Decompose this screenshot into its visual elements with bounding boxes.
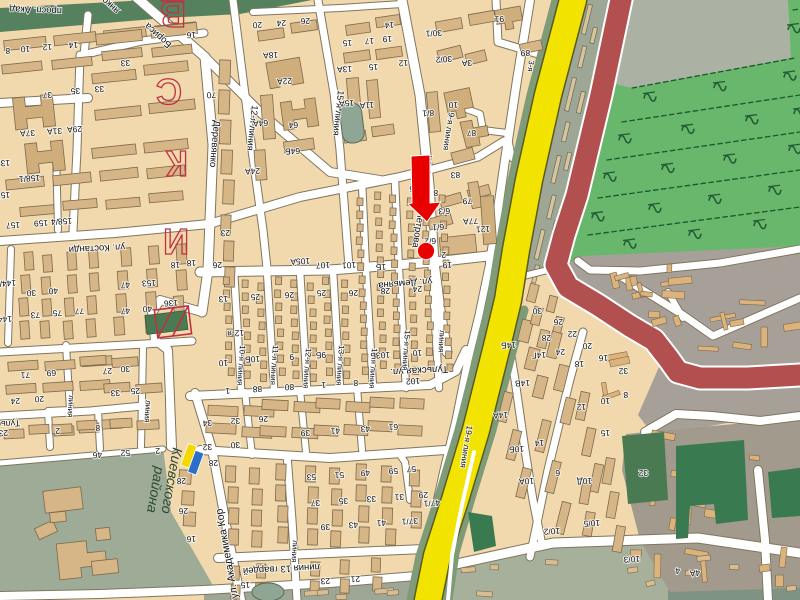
svg-text:40: 40 [142,304,152,314]
svg-text:30/2: 30/2 [435,54,452,65]
svg-text:19: 19 [442,260,452,270]
svg-text:1: 1 [321,380,327,390]
svg-text:22А: 22А [276,76,292,87]
svg-text:24: 24 [276,18,286,28]
svg-text:18А: 18А [262,50,278,61]
svg-text:12: 12 [398,58,408,68]
svg-text:В: В [160,0,186,35]
svg-text:14Б: 14Б [500,340,516,351]
svg-text:59: 59 [388,466,398,476]
svg-text:71: 71 [20,370,30,380]
svg-text:24: 24 [555,347,565,357]
svg-text:6: 6 [555,468,561,478]
svg-text:К: К [165,143,188,184]
svg-text:11А: 11А [359,100,374,111]
svg-text:13А: 13А [336,64,352,75]
svg-text:21: 21 [350,574,360,584]
svg-text:135: 135 [0,158,10,169]
svg-text:14: 14 [534,438,544,448]
svg-text:10: 10 [20,44,30,54]
svg-text:24А: 24А [244,166,260,177]
svg-text:12: 12 [42,42,52,52]
svg-text:20: 20 [582,341,592,351]
svg-text:14: 14 [384,20,394,30]
svg-text:31А: 31А [46,126,62,137]
svg-text:24: 24 [412,284,422,294]
svg-text:13: 13 [218,294,228,304]
svg-text:32: 32 [230,416,240,426]
svg-text:16: 16 [186,534,196,544]
svg-text:26: 26 [553,317,563,327]
svg-text:30: 30 [532,306,542,316]
svg-text:1Б: 1Б [375,262,386,273]
svg-text:29А: 29А [66,124,82,135]
svg-text:75: 75 [52,308,62,318]
svg-text:10: 10 [412,348,422,358]
svg-text:53: 53 [306,472,316,482]
svg-text:26: 26 [212,260,222,270]
svg-text:10Д: 10Д [576,476,592,487]
svg-text:31: 31 [394,492,404,502]
svg-text:3-я: 3-я [526,60,536,72]
svg-text:линия: линия [65,395,76,418]
svg-text:28: 28 [380,286,390,296]
svg-text:14А: 14А [492,410,508,421]
svg-text:26: 26 [284,290,294,300]
svg-text:18: 18 [574,359,584,369]
svg-text:35: 35 [338,496,348,506]
svg-text:2: 2 [155,446,161,456]
svg-text:107: 107 [315,260,330,271]
svg-text:121: 121 [475,224,490,235]
svg-text:15А: 15А [338,98,354,109]
svg-text:8: 8 [5,46,11,56]
svg-text:39: 39 [320,522,330,532]
svg-text:28: 28 [208,458,218,468]
svg-text:линия: линия [142,400,153,423]
svg-text:33: 33 [110,388,120,398]
svg-text:12-я: 12-я [227,328,245,339]
svg-text:37А: 37А [19,128,35,139]
svg-text:41: 41 [376,518,386,528]
svg-text:30: 30 [26,288,36,298]
svg-text:69: 69 [46,368,56,378]
svg-text:32: 32 [618,366,628,376]
svg-text:25: 25 [130,386,140,396]
svg-text:10/3: 10/3 [623,554,640,565]
svg-text:52: 52 [120,448,130,458]
svg-text:24: 24 [10,396,20,406]
svg-text:47: 47 [120,306,130,316]
svg-text:61: 61 [388,422,398,432]
svg-text:10: 10 [600,396,610,406]
svg-text:30: 30 [230,440,240,450]
svg-text:87: 87 [466,128,476,138]
svg-text:35: 35 [70,86,80,96]
svg-text:89: 89 [520,48,530,58]
svg-text:23: 23 [320,576,330,586]
svg-text:39: 39 [300,428,310,438]
svg-text:10: 10 [448,100,458,110]
svg-text:14Г: 14Г [531,350,546,361]
svg-text:64А: 64А [252,118,268,129]
svg-text:101: 101 [341,260,356,271]
svg-text:10Б: 10Б [244,354,260,365]
svg-text:27: 27 [102,366,112,376]
svg-text:23: 23 [0,428,8,438]
svg-text:57: 57 [406,464,416,474]
svg-text:34: 34 [202,418,212,428]
svg-text:14В: 14В [514,378,530,389]
svg-text:14: 14 [68,40,78,50]
svg-text:4: 4 [675,566,681,576]
svg-text:6/1: 6/1 [432,222,445,233]
svg-text:40: 40 [48,286,58,296]
svg-text:25: 25 [316,288,326,298]
svg-text:И: И [163,221,189,262]
svg-text:10: 10 [218,358,228,368]
svg-text:20: 20 [34,394,44,404]
svg-text:просп. Акад: просп. Акад [9,3,62,16]
svg-text:8: 8 [95,423,101,433]
svg-text:144/6: 144/6 [0,278,16,289]
svg-text:64: 64 [288,120,298,130]
svg-text:1: 1 [225,386,231,396]
svg-text:30/1: 30/1 [425,28,442,39]
svg-text:102: 102 [405,376,420,387]
svg-text:43: 43 [360,424,370,434]
svg-text:158/1: 158/1 [18,173,40,184]
svg-text:83: 83 [450,170,460,180]
svg-text:15: 15 [240,580,250,590]
svg-text:12: 12 [576,402,586,412]
svg-text:9Б: 9Б [315,350,326,361]
svg-text:С: С [156,71,182,112]
svg-text:линия: линия [289,540,300,563]
svg-text:37: 37 [42,90,52,100]
svg-text:157: 157 [5,220,20,231]
svg-text:26: 26 [258,414,268,424]
svg-text:26: 26 [178,506,188,516]
svg-text:8: 8 [353,378,359,388]
svg-text:153: 153 [141,278,156,289]
svg-text:8/1: 8/1 [422,108,435,119]
svg-text:2: 2 [55,426,61,436]
svg-text:30: 30 [120,364,130,374]
svg-text:73: 73 [30,310,40,320]
svg-text:15: 15 [368,62,378,72]
svg-text:26: 26 [300,16,310,26]
svg-text:91: 91 [494,14,504,24]
svg-text:47: 47 [120,280,130,290]
svg-text:16: 16 [598,353,608,363]
svg-text:33: 33 [94,84,104,94]
svg-text:37/1: 37/1 [401,516,418,527]
svg-text:15: 15 [342,38,352,48]
svg-text:3А: 3А [461,58,472,69]
svg-text:47/1: 47/1 [423,498,440,509]
svg-text:105А: 105А [290,256,311,267]
svg-text:88: 88 [252,384,262,394]
svg-text:16: 16 [186,30,196,40]
svg-text:64Б: 64Б [284,146,300,157]
svg-text:10А: 10А [518,476,534,487]
svg-text:79: 79 [462,196,472,206]
svg-text:линия: линия [436,330,447,353]
svg-text:28: 28 [176,476,186,486]
svg-text:33: 33 [366,494,376,504]
svg-text:2: 2 [441,250,447,260]
svg-text:103Б: 103Б [370,350,391,361]
svg-text:46: 46 [92,450,102,460]
svg-text:20: 20 [252,20,262,30]
svg-text:10/2: 10/2 [543,526,560,537]
svg-text:15: 15 [600,428,610,438]
svg-text:19: 19 [382,34,392,44]
svg-text:77: 77 [74,306,84,316]
svg-text:10Б: 10Б [508,444,524,455]
svg-text:158/4: 158/4 [50,216,72,227]
svg-text:6/3: 6/3 [438,206,451,217]
svg-text:25: 25 [250,292,260,302]
svg-text:41: 41 [330,426,340,436]
svg-text:4А: 4А [689,568,700,579]
svg-text:33: 33 [120,58,130,68]
svg-text:32: 32 [638,468,648,478]
svg-text:70: 70 [206,90,216,100]
svg-text:159: 159 [33,218,48,229]
svg-text:22: 22 [567,329,577,339]
svg-text:10/5: 10/5 [583,518,600,529]
svg-text:28: 28 [541,333,551,343]
svg-text:80: 80 [284,382,294,392]
svg-text:32: 32 [202,442,212,452]
svg-text:155: 155 [0,190,10,201]
svg-text:51: 51 [334,470,344,480]
svg-text:8: 8 [623,390,629,400]
svg-text:9: 9 [289,352,295,362]
svg-text:23: 23 [220,228,230,238]
svg-text:49: 49 [360,468,370,478]
svg-text:37: 37 [310,498,320,508]
svg-text:8: 8 [433,188,439,198]
svg-text:17: 17 [364,36,374,46]
svg-text:43: 43 [348,520,358,530]
svg-text:26: 26 [348,288,358,298]
svg-text:144/4: 144/4 [0,314,12,325]
